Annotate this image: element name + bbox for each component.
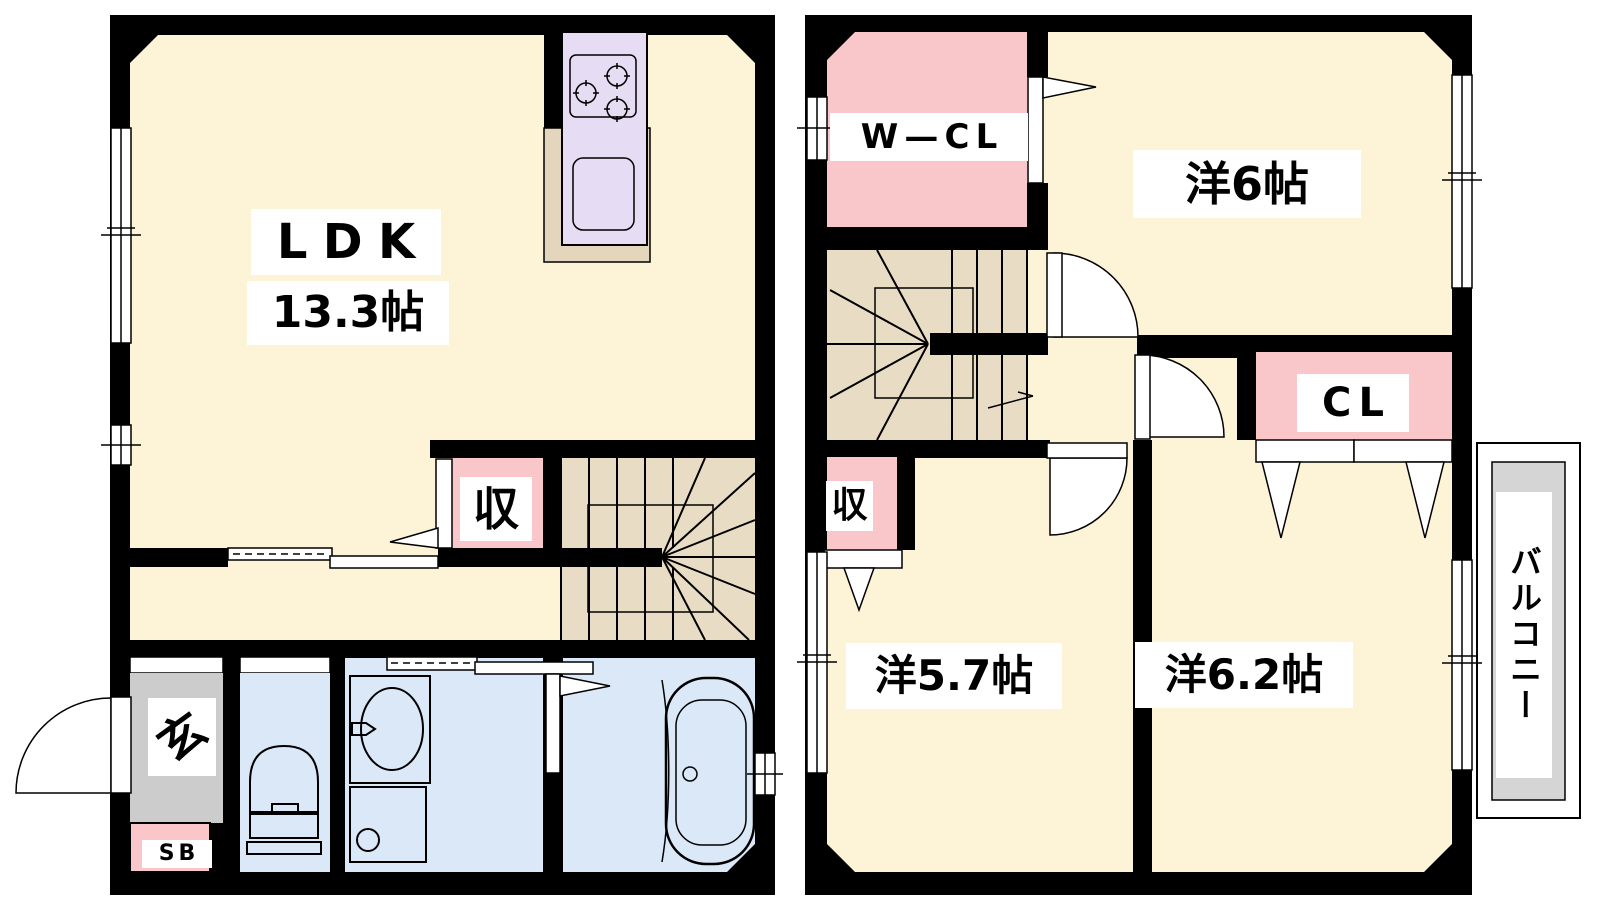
room62-label: 洋6.2帖	[1135, 642, 1353, 708]
shoebox-label: SB	[142, 840, 212, 868]
wall-stairs-mid	[930, 333, 1048, 355]
room6-label: 洋6帖	[1133, 150, 1361, 218]
walkin-closet-label: W—CL	[830, 113, 1028, 161]
wall-wcl-right-bottom	[1027, 183, 1048, 227]
toilet-threshold	[240, 657, 330, 673]
stairs-1f-upper	[561, 458, 755, 548]
kitchen-wall-stub	[544, 35, 562, 128]
floorplan-page: LDK 13.3帖 収 玄 SB W—CL 洋6帖 CL 収 洋5.7帖 洋6.…	[0, 0, 1600, 900]
floor1-plan	[16, 15, 783, 895]
wall-wcl-right-top	[1027, 32, 1048, 77]
bath-door	[546, 674, 560, 773]
wall-storage2f-right	[897, 457, 915, 550]
entrance-threshold	[130, 657, 223, 673]
storage-1f-label: 収	[460, 477, 532, 541]
wall-ldk-divider-right	[438, 548, 662, 567]
room57-label: 洋5.7帖	[846, 643, 1062, 709]
wall-cl-left	[1237, 352, 1256, 440]
wall-wcl-bottom	[805, 227, 1048, 250]
wall-toilet-washroom	[330, 640, 345, 872]
wall-ldk-divider-left	[130, 548, 228, 567]
entrance-door-swing-icon	[16, 697, 131, 793]
entrance-label: 玄	[148, 698, 216, 776]
wall-stairs-top	[430, 440, 755, 458]
wall-stairs-bottom	[805, 440, 1050, 458]
storage-2f-label: 収	[826, 481, 873, 531]
wall-storage-right	[543, 458, 561, 548]
balcony-label: バルコニー	[1496, 492, 1552, 778]
stairs-1f-lower	[561, 567, 755, 640]
closet-label: CL	[1297, 374, 1409, 432]
wcl-door	[1028, 77, 1043, 183]
floorplan-canvas	[0, 0, 1600, 900]
ldk-size-label: 13.3帖	[247, 281, 449, 345]
ldk-label: LDK	[251, 209, 441, 275]
washroom-floor	[345, 658, 543, 872]
